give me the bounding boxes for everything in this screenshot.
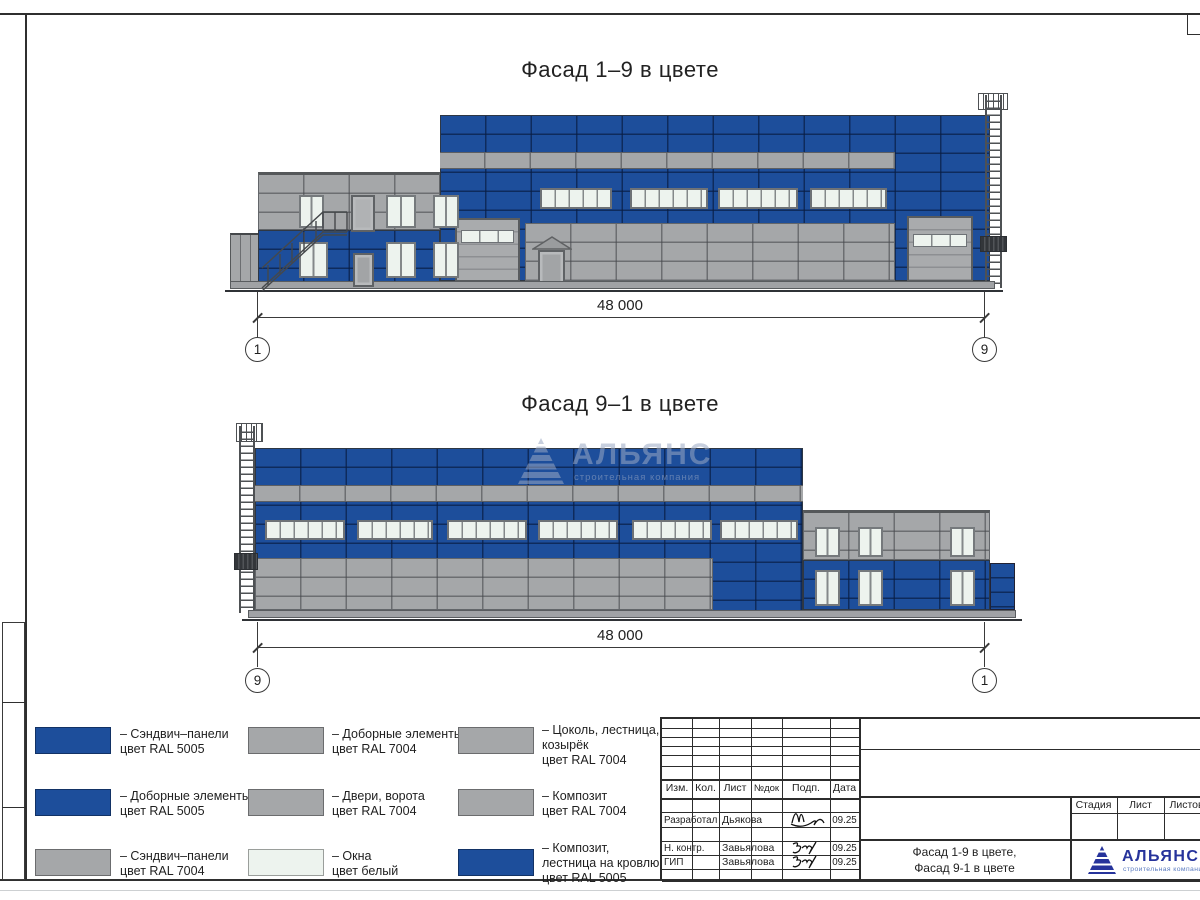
ribbon-window — [630, 188, 708, 209]
axis-bubble: 9 — [972, 337, 997, 362]
legend-label: – Доборные элементы цвет RAL 5005 — [120, 789, 251, 819]
tb-stage-header: Стадия — [1070, 798, 1117, 813]
window — [386, 242, 416, 278]
facade1-drawing — [230, 93, 1010, 298]
tb-line — [782, 719, 783, 882]
legend-swatch — [458, 789, 534, 816]
tb-name: Завьялова — [722, 855, 780, 870]
ribbon-window — [720, 520, 798, 540]
axis-bubble: 9 — [245, 668, 270, 693]
tb-date: 09.25 — [830, 841, 859, 856]
tb-line — [662, 737, 859, 738]
tb-role: Н. контр. — [664, 841, 720, 856]
legend-label: – Доборные элементы цвет RAL 7004 — [332, 727, 463, 757]
tb-header-kol: Кол. — [692, 781, 719, 796]
tb-line — [859, 749, 1200, 750]
tb-sheet-header: Лист — [1117, 798, 1164, 813]
tb-name: Завьялова — [722, 841, 780, 856]
entry-door — [353, 253, 374, 287]
ribbon-window — [538, 520, 618, 540]
signature-icon — [789, 854, 823, 869]
gate-door — [907, 216, 973, 282]
gate-window-strip — [461, 230, 514, 243]
ribbon-window — [632, 520, 712, 540]
watermark-name: АЛЬЯНС — [572, 438, 712, 472]
legend-swatch — [458, 849, 534, 876]
facade1-title: Фасад 1–9 в цвете — [420, 57, 820, 83]
frame-corner-box — [1187, 15, 1200, 35]
roof-ladder-icon — [985, 95, 1002, 288]
axis-bubble: 1 — [245, 337, 270, 362]
signature-icon — [787, 802, 827, 829]
watermark-tagline: строительная компания — [574, 472, 700, 483]
watermark: АЛЬЯНС строительная компания — [518, 436, 778, 492]
ribbon-window — [357, 520, 433, 540]
tb-line — [662, 755, 859, 756]
watermark-pyramid-icon — [518, 438, 564, 484]
roof-ladder-icon — [239, 426, 255, 613]
tb-line — [1070, 813, 1200, 814]
hall-lower-gray — [255, 558, 713, 610]
tb-sheet-title: Фасад 1-9 в цвете, Фасад 9-1 в цвете — [859, 844, 1070, 876]
legend-label: – Цоколь, лестница, козырёк цвет RAL 700… — [542, 723, 659, 768]
logo-pyramid-icon — [1088, 846, 1116, 874]
legend-swatch — [35, 849, 111, 876]
dimension-value: 48 000 — [520, 297, 720, 314]
paper-edge — [0, 890, 1200, 891]
logo-tagline: строительная компания — [1123, 866, 1200, 873]
gate-door — [455, 218, 520, 282]
tb-line — [662, 766, 859, 767]
tb-header-podp: Подп. — [782, 781, 830, 796]
tb-line — [662, 728, 859, 729]
tb-header-data: Дата — [830, 781, 859, 796]
legend-swatch — [248, 789, 324, 816]
annex-block — [990, 563, 1015, 610]
axis-bubble: 1 — [972, 668, 997, 693]
ribbon-window — [447, 520, 527, 540]
tb-line — [662, 880, 1200, 882]
tb-date: 09.25 — [830, 813, 859, 828]
legend-label: – Сэндвич–панели цвет RAL 5005 — [120, 727, 229, 757]
tb-header-list: Лист — [719, 781, 751, 796]
facade2-title: Фасад 9–1 в цвете — [420, 391, 820, 417]
dimension-value: 48 000 — [520, 627, 720, 644]
ribbon-window — [265, 520, 345, 540]
legend-label: – Сэндвич–панели цвет RAL 7004 — [120, 849, 229, 879]
ground-line — [242, 619, 1022, 621]
title-block: Изм. Кол. Лист №док Подп. Дата Разработа… — [660, 717, 1200, 880]
hall-gray-band — [440, 152, 895, 169]
tb-date: 09.25 — [830, 855, 859, 870]
ladder-cage — [980, 236, 1007, 252]
tb-role: Разработал — [664, 813, 720, 828]
legend-swatch — [248, 849, 324, 876]
legend: – Сэндвич–панели цвет RAL 5005 – Доборны… — [0, 715, 660, 885]
ladder-cage — [234, 553, 258, 570]
legend-label: – Композит, лестница на кровлю цвет RAL … — [542, 841, 659, 886]
legend-swatch — [248, 727, 324, 754]
tb-header-izm: Изм. — [662, 781, 692, 796]
legend-swatch — [458, 727, 534, 754]
window — [950, 570, 975, 606]
frame-top — [0, 13, 1200, 15]
facade2-drawing: АЛЬЯНС строительная компания — [230, 423, 1020, 628]
hall-lower-gray — [525, 223, 895, 281]
ribbon-window — [718, 188, 798, 209]
ribbon-window — [540, 188, 612, 209]
side-strip-divider — [2, 702, 25, 703]
window — [950, 527, 975, 557]
signature-icon — [789, 840, 823, 855]
plinth — [248, 610, 1016, 618]
tb-line — [662, 798, 861, 800]
window — [815, 570, 840, 606]
window — [433, 195, 459, 228]
drawing-sheet: Фасад 1–9 в цвете — [0, 0, 1200, 900]
window — [858, 527, 883, 557]
tb-line — [662, 746, 859, 747]
dimension-line — [258, 317, 985, 318]
legend-label: – Двери, ворота цвет RAL 7004 — [332, 789, 425, 819]
legend-swatch — [35, 727, 111, 754]
legend-label: – Композит цвет RAL 7004 — [542, 789, 627, 819]
window — [858, 570, 883, 606]
legend-label: – Окна цвет белый — [332, 849, 398, 879]
company-logo: АЛЬЯНС строительная компания — [1070, 839, 1200, 880]
balcony-door — [351, 195, 375, 232]
tb-role: ГИП — [664, 855, 720, 870]
legend-swatch — [35, 789, 111, 816]
tb-name: Дьякова — [722, 813, 780, 828]
dimension-line — [258, 647, 985, 648]
window — [386, 195, 416, 228]
window — [433, 242, 459, 278]
canopy-icon — [532, 236, 572, 250]
window — [815, 527, 840, 557]
tb-sheets-header: Листов — [1164, 798, 1200, 813]
external-stair-icon — [254, 199, 354, 291]
tb-header-ndok: №док — [751, 781, 782, 796]
ribbon-window — [810, 188, 887, 209]
logo-name: АЛЬЯНС — [1122, 848, 1199, 866]
gate-window-strip — [913, 234, 967, 247]
